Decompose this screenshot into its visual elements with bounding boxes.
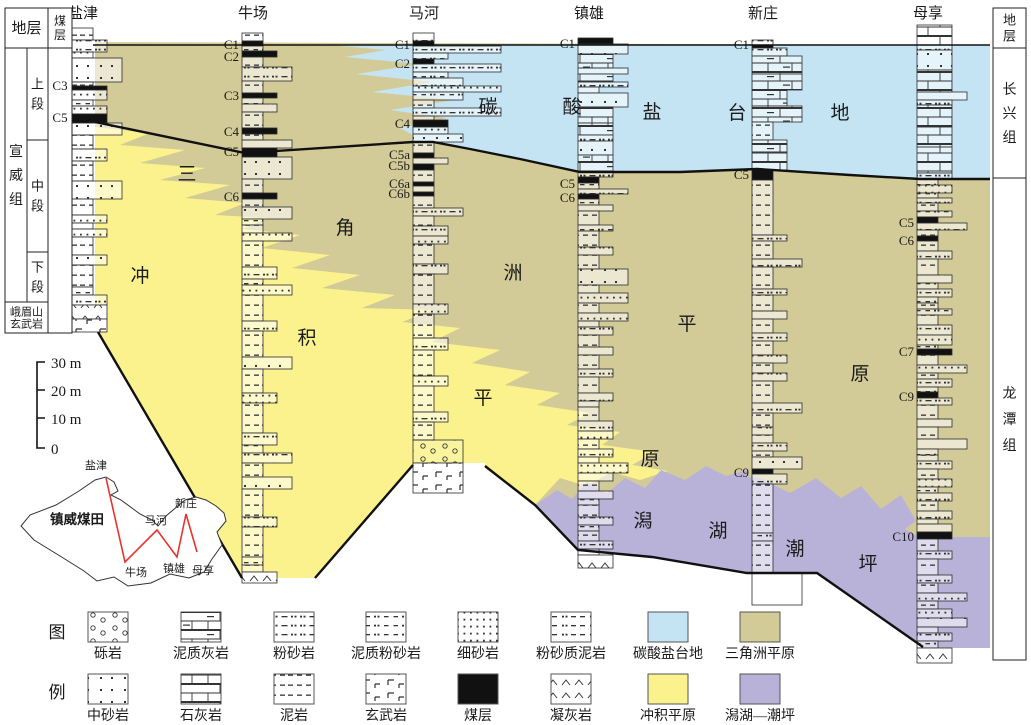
litho-pattern (917, 524, 952, 532)
litho-pattern (578, 199, 599, 205)
litho-layer-c (413, 59, 434, 64)
litho-pattern (413, 86, 501, 92)
litho-pattern (578, 205, 613, 211)
coal-seam-label: C4 (395, 116, 411, 131)
left-header-strata-header: 地层 (5, 8, 48, 48)
litho-pattern (917, 289, 952, 297)
legend-label: 碳酸盐台地 (633, 646, 703, 662)
map-station-label: 母享 (192, 563, 214, 577)
litho-pattern (72, 223, 93, 229)
legend-item: 泥质粉砂岩 (351, 612, 421, 662)
legend-swatch-pattern (88, 674, 128, 704)
facies-label-carbonate-platform: 盐 (642, 101, 661, 123)
litho-pattern (752, 289, 787, 295)
facies-label-lagoon-tidal-flat: 潟 (633, 510, 652, 532)
litho-pattern (72, 265, 93, 287)
legend-item: 泥质灰岩 (173, 612, 229, 662)
legend-swatch-pattern (458, 612, 498, 642)
litho-pattern (242, 489, 263, 517)
litho-layer-c (578, 177, 599, 183)
litho-pattern (578, 355, 599, 369)
litho-pattern (242, 279, 263, 285)
litho-pattern (413, 376, 448, 386)
litho-pattern (752, 427, 773, 435)
header-label: 段 (31, 199, 44, 214)
litho-pattern (72, 295, 107, 305)
litho-pattern (917, 398, 952, 405)
litho-pattern (578, 123, 613, 135)
facies-label-carbonate-platform: 碳 (478, 96, 497, 118)
legend-item: 粉砂岩 (273, 612, 315, 662)
litho-pattern (752, 122, 773, 140)
litho-pattern (752, 355, 787, 363)
litho-pattern (242, 199, 263, 207)
facies-label-delta-plain: 洲 (503, 263, 522, 284)
header-label: 组 (1003, 438, 1017, 454)
litho-pattern (578, 421, 613, 431)
litho-pattern (578, 335, 599, 347)
litho-pattern (72, 123, 122, 135)
litho-pattern (413, 304, 448, 314)
litho-pattern (242, 140, 292, 148)
litho-pattern (413, 350, 434, 376)
litho-layer-c (578, 194, 599, 199)
header-label: 地 (1003, 13, 1016, 28)
legend-swatch (648, 612, 688, 642)
legend-item: 石灰岩 (180, 674, 222, 724)
map-station-label: 新庄 (175, 496, 197, 510)
litho-pattern (578, 407, 599, 421)
litho-pattern (917, 223, 967, 230)
litho-pattern (578, 377, 599, 393)
litho-pattern (917, 379, 952, 387)
litho-pattern (242, 267, 277, 279)
litho-pattern (752, 259, 802, 267)
litho-pattern (242, 179, 263, 193)
litho-pattern (752, 373, 787, 381)
litho-layer-c (578, 38, 613, 44)
litho-pattern (917, 241, 938, 251)
legend-swatch-pattern (551, 612, 591, 642)
litho-pattern (752, 457, 802, 469)
litho-pattern (917, 92, 967, 100)
header-label: 长 (1003, 82, 1017, 98)
litho-pattern (752, 413, 773, 427)
litho-pattern (242, 33, 263, 41)
litho-pattern (72, 237, 93, 255)
litho-pattern (752, 541, 773, 573)
legend-item: 煤层 (458, 674, 498, 724)
coalfield-name-label: 镇威煤田 (50, 511, 104, 527)
litho-pattern (917, 618, 967, 627)
facies-label-delta-plain: 平 (677, 314, 696, 335)
litho-pattern (917, 283, 938, 289)
litho-pattern (578, 54, 613, 68)
litho-pattern (917, 583, 938, 593)
litho-pattern (917, 251, 952, 259)
litho-pattern (752, 311, 787, 319)
litho-pattern (917, 203, 938, 211)
litho-pattern (72, 215, 107, 223)
legend-swatch-pattern (551, 674, 591, 704)
litho-pattern (578, 68, 628, 74)
litho-layer-c (917, 349, 952, 355)
legend-label: 细砂岩 (457, 646, 499, 662)
left-header-emeishan-basalt: 峨眉山玄武岩 (5, 302, 48, 333)
legend-label: 潟湖—潮坪 (725, 708, 795, 724)
litho-pattern (917, 439, 967, 449)
legend-item: 冲积平原 (640, 674, 696, 724)
facies-label-alluvial-plain: 冲 (130, 265, 149, 287)
litho-pattern (917, 511, 952, 519)
header-label: 玄武岩 (10, 317, 43, 331)
facies-label-alluvial-plain: 积 (297, 327, 316, 349)
litho-pattern (242, 517, 277, 527)
litho-pattern (242, 219, 263, 225)
litho-layer-c (242, 128, 277, 134)
litho-pattern (578, 269, 628, 285)
litho-pattern (752, 381, 773, 403)
left-header-lower-member: 下段 (27, 252, 48, 302)
cross-section-canvas: 盐津牛场C1C2C3C4C5C6马河C1C2C4C5aC5bC6aC6b镇雄C1… (0, 0, 1031, 725)
stratigraphic-cross-section-figure: 盐津牛场C1C2C3C4C5C6马河C1C2C4C5aC5bC6aC6b镇雄C1… (0, 0, 1031, 725)
column-title-muxiang: 母享 (913, 5, 943, 22)
litho-pattern (578, 463, 628, 473)
litho-pattern (72, 161, 93, 181)
litho-pattern (413, 53, 448, 59)
litho-pattern (413, 158, 448, 164)
facies-label-delta-plain: 原 (850, 364, 869, 385)
litho-pattern (917, 405, 938, 419)
litho-pattern (752, 180, 773, 235)
legend-swatch-pattern (274, 612, 314, 642)
litho-pattern (578, 183, 599, 189)
litho-pattern (578, 457, 599, 463)
legend-item: 砾岩 (88, 612, 128, 662)
legend-swatch-pattern (366, 612, 406, 642)
litho-pattern (752, 341, 773, 355)
litho-pattern (578, 473, 613, 481)
litho-pattern (917, 345, 938, 349)
litho-pattern (72, 229, 107, 237)
facies-label-delta-plain: 三 (177, 164, 196, 185)
litho-pattern (242, 67, 292, 81)
facies-label-lagoon-tidal-flat: 坪 (858, 553, 877, 575)
litho-pattern (752, 484, 773, 533)
litho-pattern (413, 208, 463, 216)
litho-pattern (242, 104, 277, 112)
litho-pattern (917, 275, 952, 283)
litho-pattern (242, 477, 292, 489)
legend-label: 砾岩 (94, 646, 122, 662)
litho-pattern (242, 207, 292, 219)
litho-pattern (578, 293, 628, 303)
column-title-zhenxiong: 镇雄 (574, 5, 604, 22)
header-label: 组 (1003, 130, 1017, 146)
litho-pattern (413, 264, 448, 274)
litho-layer-c (413, 120, 448, 127)
litho-pattern (578, 449, 613, 457)
litho-pattern (752, 106, 802, 122)
litho-pattern (752, 435, 773, 443)
litho-pattern (917, 487, 938, 493)
legend-swatch (740, 674, 780, 704)
litho-layer-c (242, 193, 277, 199)
coal-seam-label: C5b (388, 158, 410, 173)
scale-tick-label: 10 m (51, 412, 82, 428)
scale-tick-label: 20 m (51, 384, 82, 400)
litho-pattern (242, 233, 292, 241)
litho-pattern (578, 525, 599, 531)
litho-pattern (917, 501, 938, 511)
facies-label-carbonate-platform: 地 (830, 102, 849, 124)
litho-layer-c (752, 469, 773, 474)
litho-pattern (242, 565, 263, 572)
header-label: 段 (31, 97, 44, 112)
litho-pattern (413, 33, 434, 41)
litho-pattern (72, 199, 93, 215)
litho-pattern (578, 369, 613, 377)
litho-pattern (413, 216, 434, 226)
litho-pattern (578, 93, 628, 107)
coal-seam-label: C4 (224, 124, 240, 139)
litho-pattern (917, 627, 938, 633)
left-header-seam-label: C5 (52, 110, 67, 125)
header-label: 峨眉山 (10, 306, 43, 319)
litho-pattern (242, 98, 263, 104)
litho-pattern (578, 327, 613, 335)
litho-pattern (578, 439, 599, 449)
litho-pattern (578, 82, 628, 87)
litho-pattern (917, 309, 952, 315)
litho-pattern (413, 186, 434, 192)
litho-pattern (917, 230, 938, 236)
legend-item: 细砂岩 (457, 612, 499, 662)
litho-pattern (917, 539, 938, 551)
litho-pattern (578, 303, 599, 313)
litho-pattern (578, 231, 599, 247)
litho-pattern (578, 541, 613, 549)
coal-seam-label: C6 (899, 233, 915, 248)
litho-pattern (242, 134, 263, 140)
litho-pattern (752, 363, 773, 373)
right-header-longtan-formation: 龙潭组 (993, 178, 1026, 660)
litho-pattern (752, 333, 787, 341)
litho-pattern (242, 445, 263, 453)
header-label: 潭 (1003, 411, 1017, 428)
litho-pattern (242, 295, 263, 321)
litho-pattern (917, 297, 938, 303)
litho-pattern (752, 74, 802, 90)
scale-bar-axis (37, 362, 45, 448)
coal-seam-label: C2 (224, 49, 239, 64)
litho-pattern (242, 453, 292, 463)
legend-item: 泥岩 (274, 674, 314, 724)
litho-pattern (917, 575, 952, 583)
legend-label: 煤层 (464, 708, 492, 724)
legend-item: 三角洲平原 (725, 612, 795, 662)
coal-seam-label: C10 (892, 529, 914, 544)
litho-pattern (72, 52, 93, 58)
litho-pattern (72, 40, 107, 52)
header-label: 段 (31, 280, 44, 295)
litho-pattern (917, 50, 952, 70)
litho-pattern (917, 519, 938, 524)
litho-pattern (917, 303, 938, 309)
litho-layer-c (752, 170, 773, 180)
litho-pattern (752, 533, 773, 541)
litho-pattern (242, 46, 263, 51)
litho-pattern (917, 100, 952, 105)
litho-pattern (72, 135, 93, 149)
litho-pattern (413, 386, 434, 412)
litho-pattern (578, 499, 599, 505)
litho-pattern (917, 127, 952, 147)
litho-layer-c (413, 153, 434, 158)
litho-pattern (578, 481, 599, 491)
litho-pattern (413, 236, 448, 244)
legend-item: 凝灰岩 (550, 674, 592, 724)
coal-seam-label: C6b (388, 186, 410, 201)
litho-pattern (242, 321, 277, 331)
coal-seam-label: C1 (560, 36, 575, 51)
litho-pattern (917, 609, 952, 618)
right-header-changxing-formation: 长兴组 (993, 48, 1026, 178)
legend-label: 泥质灰岩 (173, 646, 229, 662)
litho-pattern (578, 505, 599, 517)
litho-pattern (578, 135, 613, 141)
litho-pattern (413, 92, 463, 100)
left-header-upper-member: 上段 (27, 48, 48, 140)
litho-pattern (917, 259, 938, 275)
litho-pattern (242, 285, 292, 295)
litho-pattern (752, 90, 787, 106)
litho-pattern (72, 181, 122, 199)
litho-pattern (752, 295, 773, 311)
litho-pattern (917, 185, 952, 193)
coal-seam-label: C3 (224, 88, 239, 103)
litho-pattern (917, 198, 952, 203)
litho-pattern (752, 235, 787, 241)
litho-layer-c (917, 236, 938, 241)
litho-pattern (917, 479, 952, 487)
legend-label: 泥岩 (280, 708, 308, 724)
litho-pattern (917, 355, 938, 365)
litho-pattern (578, 431, 613, 439)
litho-pattern (413, 46, 501, 53)
legend-label: 石灰岩 (180, 708, 222, 724)
litho-pattern (72, 28, 93, 40)
litho-layer-c (72, 114, 107, 123)
litho-pattern (578, 107, 613, 123)
litho-pattern (578, 87, 599, 93)
column-title-mahe: 马河 (409, 5, 439, 22)
litho-pattern (242, 463, 263, 477)
right-header-strata-header-right: 地层 (993, 8, 1026, 48)
legend-swatch (740, 612, 780, 642)
litho-pattern (917, 25, 952, 45)
legend-swatch-pattern (181, 674, 221, 704)
legend-item: 玄武岩 (365, 674, 407, 724)
litho-pattern (413, 116, 434, 120)
litho-pattern (917, 335, 952, 345)
litho-pattern (72, 100, 93, 106)
litho-pattern (242, 57, 263, 67)
litho-pattern (917, 648, 952, 663)
litho-pattern (917, 105, 952, 127)
legend-swatch (458, 674, 498, 704)
litho-pattern (917, 147, 952, 173)
litho-pattern (578, 155, 613, 172)
litho-layer-c (917, 392, 938, 398)
litho-layer-c (242, 51, 277, 57)
litho-pattern (242, 81, 263, 93)
litho-pattern (413, 244, 434, 264)
litho-pattern (578, 491, 613, 499)
litho-pattern (578, 74, 613, 82)
legend-item: 潟湖—潮坪 (725, 674, 795, 724)
litho-layer-c (413, 192, 434, 196)
litho-pattern (242, 393, 277, 403)
litho-pattern (917, 449, 938, 455)
legend-title: 图 (49, 623, 66, 642)
coal-seam-label: C2 (395, 56, 410, 71)
litho-layer-c (917, 217, 938, 223)
legend-label: 三角洲平原 (725, 646, 795, 662)
litho-pattern (578, 531, 599, 541)
header-label: 层 (1003, 29, 1016, 44)
coal-seam-label: C9 (899, 389, 914, 404)
legend-swatch-pattern (274, 674, 314, 704)
litho-pattern (72, 255, 107, 265)
litho-pattern (413, 100, 434, 108)
legend-item: 中砂岩 (87, 674, 129, 724)
litho-pattern (917, 387, 938, 392)
legend-swatch-pattern (181, 612, 221, 642)
litho-layer-c (242, 93, 277, 98)
header-label: 组 (9, 192, 23, 208)
header-label: 地层 (11, 20, 41, 37)
litho-pattern (413, 226, 448, 236)
litho-pattern (917, 211, 952, 217)
litho-pattern (242, 369, 263, 393)
litho-pattern (413, 440, 463, 463)
litho-pattern (413, 78, 463, 86)
litho-pattern (413, 127, 448, 134)
litho-pattern (72, 82, 93, 86)
litho-pattern (752, 403, 802, 413)
litho-pattern (917, 559, 938, 575)
header-label: 兴 (1003, 106, 1017, 122)
litho-pattern (578, 255, 599, 269)
legend-swatch-pattern (366, 674, 406, 704)
litho-pattern (752, 152, 787, 170)
map-station-label: 盐津 (85, 459, 107, 472)
legend-item: 粉砂质泥岩 (536, 612, 606, 662)
litho-pattern (752, 474, 787, 484)
litho-pattern (752, 443, 787, 451)
legend-label: 中砂岩 (87, 708, 129, 724)
litho-pattern (917, 633, 952, 641)
facies-label-carbonate-platform: 台 (727, 102, 746, 124)
legend-title: 例 (49, 683, 66, 702)
litho-pattern (578, 517, 613, 525)
litho-pattern (917, 373, 938, 379)
legend: 图例砾岩泥质灰岩粉砂岩泥质粉砂岩细砂岩粉砂质泥岩碳酸盐台地三角洲平原中砂岩石灰岩… (49, 612, 796, 724)
coal-seam-label: C5 (560, 176, 575, 191)
litho-pattern (578, 285, 599, 293)
litho-layer-w (752, 573, 802, 605)
